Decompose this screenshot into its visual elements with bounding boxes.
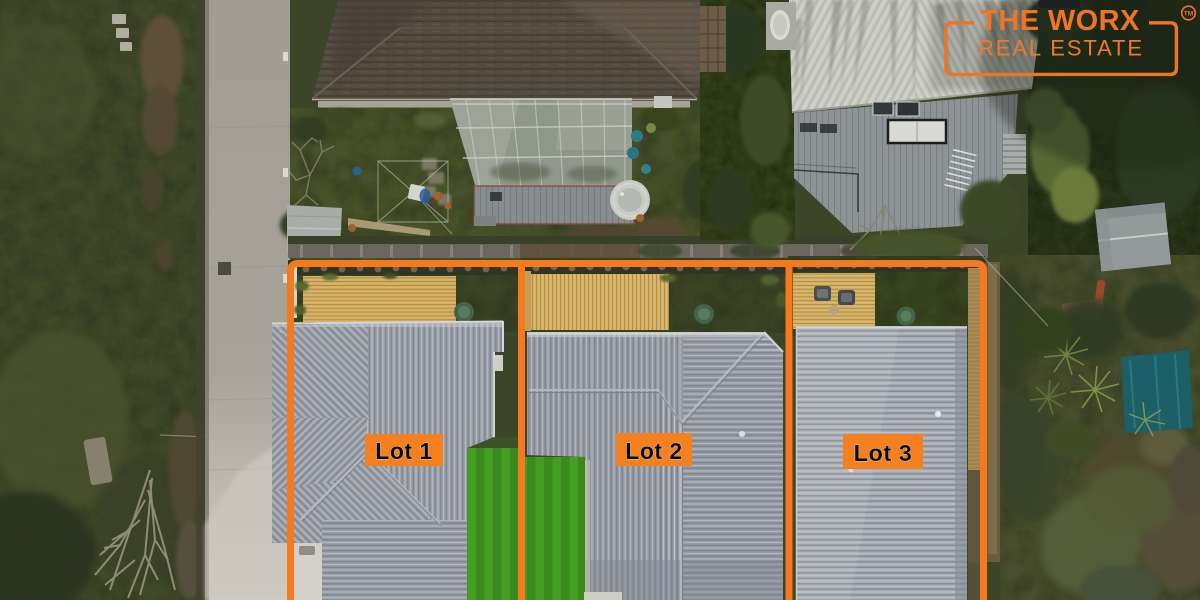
svg-text:THE WORX: THE WORX [980,5,1140,37]
svg-text:Lot 3: Lot 3 [854,440,913,466]
svg-text:Lot 2: Lot 2 [625,438,682,464]
svg-text:REAL ESTATE: REAL ESTATE [978,36,1144,61]
svg-text:TM: TM [1184,11,1193,18]
svg-text:Lot 1: Lot 1 [375,438,432,464]
